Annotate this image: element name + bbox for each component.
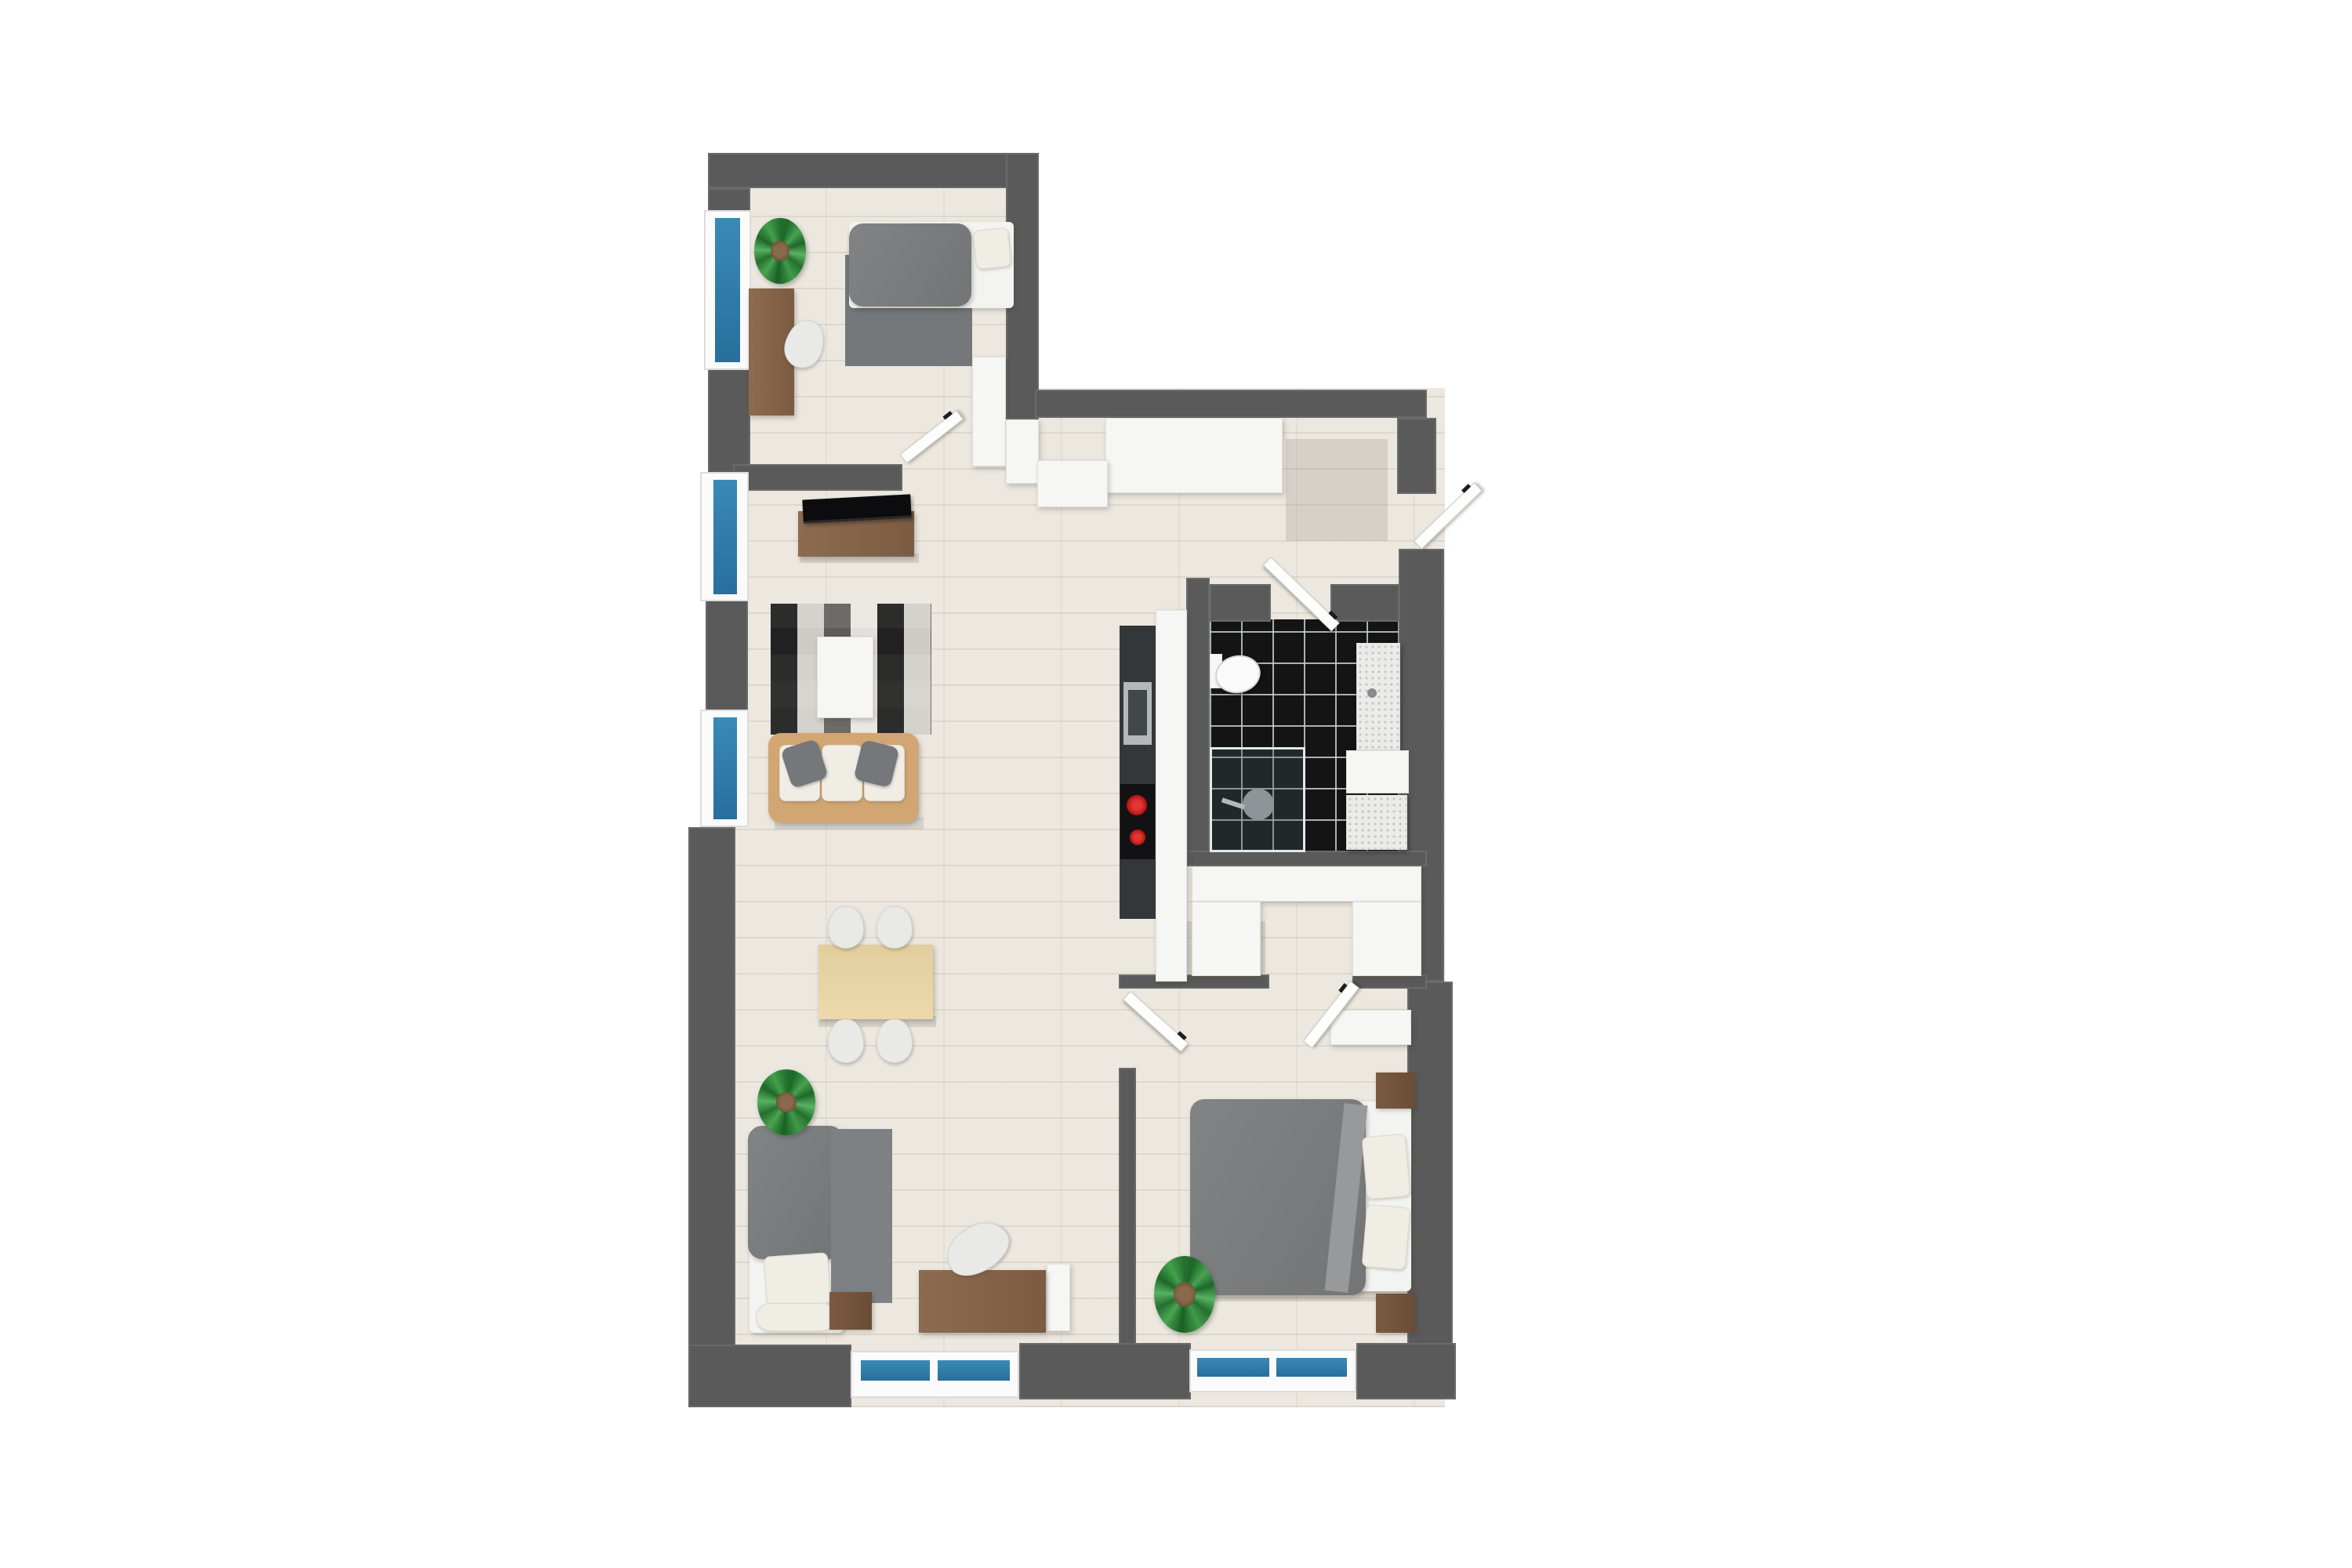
dining-chair-1: [828, 906, 864, 949]
dining-chair-2: [877, 906, 913, 949]
wall-corridor-east: [1352, 975, 1427, 989]
office-plant: [754, 218, 806, 284]
hall-cabinet-corner: [1037, 460, 1108, 507]
wall-bath-left: [1186, 578, 1210, 862]
stove-burner-2: [1130, 829, 1145, 845]
stove-burner-1: [1127, 795, 1147, 815]
closet-east: [1352, 902, 1421, 976]
wall-bottom-southwest: [688, 1345, 851, 1407]
nightstand-north: [1376, 1073, 1415, 1109]
wall-bath-top-east: [1330, 584, 1399, 622]
bedroom-plant: [1154, 1256, 1215, 1333]
bedroom-wardrobe: [1330, 1010, 1411, 1045]
desk-2: [919, 1270, 1046, 1333]
window-living-south-glass: [713, 717, 737, 819]
window-office-glass: [715, 218, 740, 362]
office-partition: [1006, 419, 1039, 484]
wall-office-bottom: [733, 464, 902, 491]
dining-table: [818, 945, 933, 1019]
desk2-side-panel: [1047, 1264, 1070, 1331]
wall-bottom-southeast: [1356, 1343, 1456, 1399]
vanity-faucet: [1367, 688, 1377, 698]
wall-left-lower: [688, 827, 735, 1346]
kitchen-sink-basin: [1128, 690, 1147, 735]
bed-pillow-2: [1362, 1204, 1411, 1271]
closet-strip: [1192, 866, 1421, 902]
daybed-pillow: [764, 1252, 831, 1308]
bath-lower-unit: [1346, 795, 1407, 850]
window-bottom-west-glass-2: [938, 1360, 1010, 1381]
exterior-notch: [1039, 86, 1478, 388]
coffee-table: [817, 637, 873, 718]
dining-chair-4: [877, 1019, 913, 1063]
office-bed-pillow: [973, 227, 1012, 270]
hall-cabinet-long: [1105, 418, 1283, 493]
window-bedroom-glass-2: [1276, 1358, 1347, 1377]
shower-head: [1243, 789, 1274, 820]
daybed-plant: [757, 1069, 815, 1135]
window-bottom-west-glass-1: [861, 1360, 930, 1381]
daybed-nightstand: [829, 1292, 872, 1330]
kitchen-front-panel: [1156, 610, 1187, 982]
wall-top-office: [708, 153, 1039, 188]
wall-right-upper: [1397, 418, 1436, 494]
closet-west: [1192, 902, 1261, 976]
apartment-floor-plan: [0, 0, 2352, 1568]
dining-chair-3: [828, 1019, 864, 1063]
office-wardrobe: [972, 357, 1006, 466]
wall-divider-living-bedroom: [1119, 1068, 1136, 1348]
office-bed-duvet: [849, 223, 971, 307]
daybed-duvet: [748, 1126, 844, 1259]
wall-bath-top-west: [1210, 584, 1271, 622]
vanity-counter: [1356, 643, 1400, 750]
daybed-roll: [756, 1303, 836, 1331]
shadow-hallway: [1286, 439, 1388, 541]
wall-corridor-west: [1119, 975, 1269, 989]
daybed-rug: [831, 1129, 892, 1303]
vanity-cabinet: [1346, 750, 1409, 793]
wall-left-pier: [706, 600, 748, 711]
window-living-north-glass: [713, 480, 737, 594]
wall-left-office-lower: [708, 367, 750, 474]
wall-hall-top: [1035, 390, 1427, 418]
wall-bottom-middle: [1019, 1343, 1191, 1399]
wall-bath-bottom: [1186, 851, 1427, 866]
window-bedroom-glass-1: [1197, 1358, 1269, 1377]
wall-right-lower: [1407, 982, 1453, 1347]
nightstand-south: [1376, 1294, 1415, 1333]
kitchen-counter: [1120, 626, 1156, 919]
floor-plan-image: [0, 0, 2352, 1568]
bed-pillow-1: [1362, 1134, 1411, 1200]
